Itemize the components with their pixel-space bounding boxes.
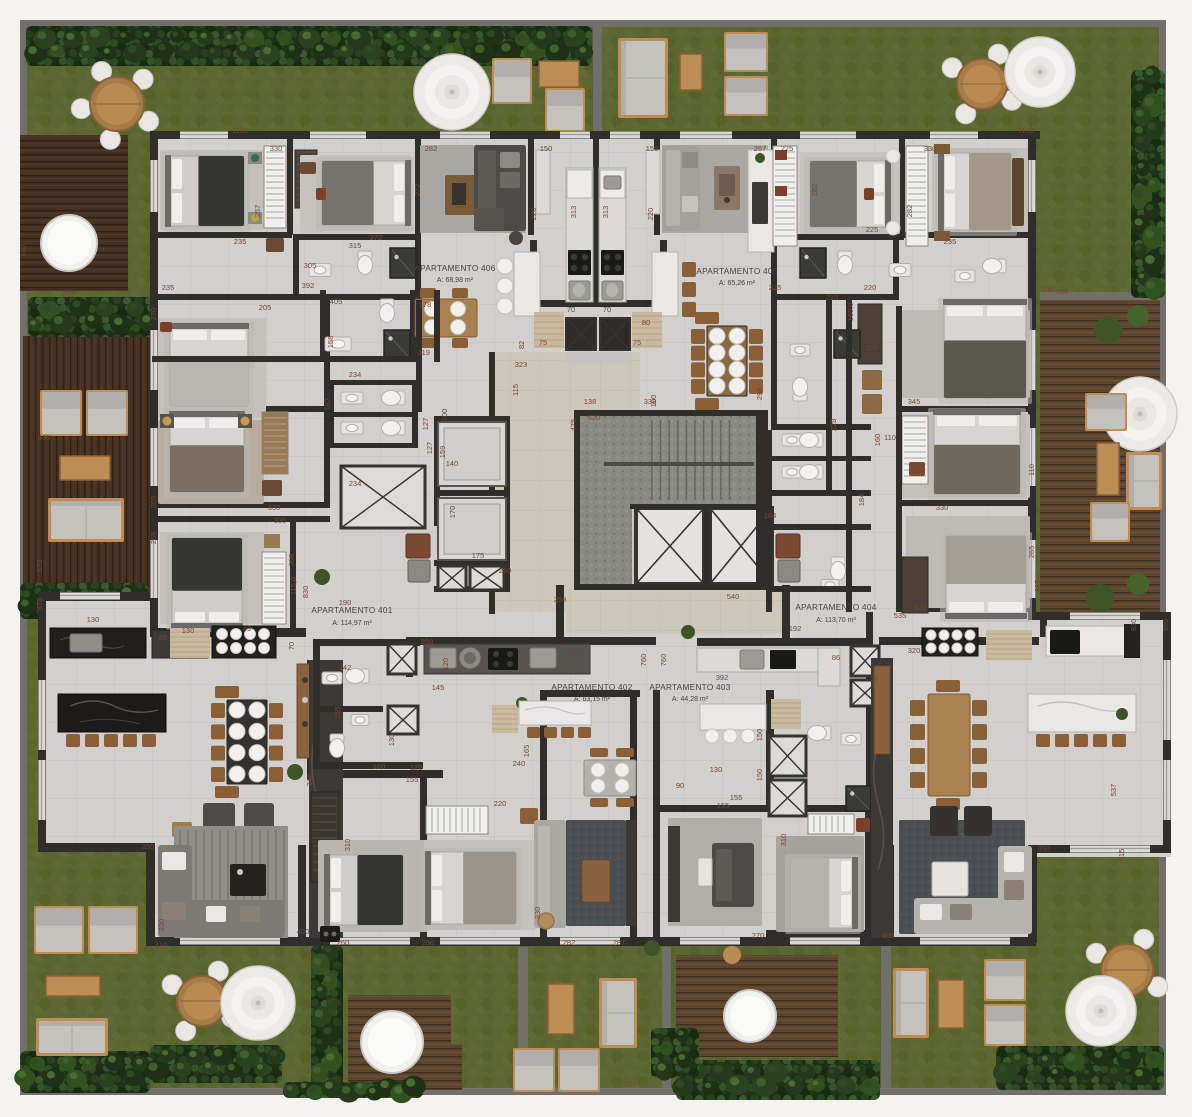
svg-text:85: 85 — [159, 633, 167, 642]
svg-text:165: 165 — [522, 745, 531, 758]
svg-text:330: 330 — [533, 907, 542, 920]
svg-text:260: 260 — [337, 938, 350, 947]
svg-text:86: 86 — [832, 653, 840, 662]
svg-text:320: 320 — [908, 646, 921, 655]
svg-text:100: 100 — [866, 343, 879, 352]
svg-text:265: 265 — [1033, 580, 1042, 593]
svg-text:315: 315 — [349, 241, 362, 250]
svg-text:385: 385 — [303, 951, 312, 964]
svg-text:265: 265 — [149, 496, 158, 509]
svg-text:535: 535 — [894, 611, 907, 620]
svg-text:282: 282 — [563, 938, 576, 947]
svg-text:175: 175 — [472, 551, 485, 560]
svg-text:330: 330 — [274, 516, 287, 525]
svg-text:178: 178 — [419, 300, 432, 309]
svg-text:140: 140 — [446, 459, 459, 468]
svg-text:265: 265 — [1027, 546, 1036, 559]
svg-text:APARTAMENTO 404: APARTAMENTO 404 — [795, 603, 876, 612]
svg-text:330: 330 — [924, 144, 937, 153]
svg-text:235: 235 — [234, 237, 247, 246]
svg-text:540: 540 — [727, 592, 740, 601]
svg-text:240: 240 — [513, 759, 526, 768]
svg-text:120: 120 — [441, 658, 450, 671]
svg-text:322: 322 — [914, 603, 927, 612]
svg-text:APARTAMENTO 406: APARTAMENTO 406 — [414, 264, 495, 273]
svg-text:125: 125 — [410, 763, 423, 772]
svg-text:282: 282 — [810, 184, 819, 197]
svg-text:400: 400 — [297, 927, 310, 936]
svg-text:615: 615 — [35, 598, 44, 611]
svg-text:297: 297 — [570, 646, 583, 655]
svg-text:150: 150 — [540, 144, 553, 153]
svg-text:234: 234 — [349, 479, 362, 488]
svg-text:130: 130 — [87, 615, 100, 624]
svg-text:150: 150 — [755, 769, 764, 782]
svg-text:310: 310 — [779, 834, 788, 847]
svg-text:950: 950 — [421, 637, 434, 646]
svg-text:235: 235 — [162, 283, 175, 292]
svg-text:250: 250 — [422, 938, 435, 947]
svg-text:287: 287 — [613, 938, 626, 947]
svg-text:345: 345 — [305, 774, 314, 787]
svg-text:230: 230 — [157, 919, 166, 932]
svg-text:1138: 1138 — [232, 126, 248, 135]
svg-text:323: 323 — [515, 360, 528, 369]
svg-text:405: 405 — [330, 297, 343, 306]
svg-text:100: 100 — [649, 395, 658, 408]
svg-text:70: 70 — [567, 305, 575, 314]
svg-text:282: 282 — [905, 205, 914, 218]
svg-text:330: 330 — [936, 503, 949, 512]
svg-text:184: 184 — [857, 494, 866, 507]
svg-text:335: 335 — [1042, 285, 1055, 294]
svg-text:267: 267 — [754, 144, 767, 153]
svg-text:150: 150 — [755, 729, 764, 742]
svg-text:228: 228 — [829, 419, 838, 432]
svg-text:150: 150 — [646, 144, 659, 153]
svg-text:270: 270 — [752, 931, 765, 940]
svg-text:350: 350 — [1038, 844, 1051, 853]
svg-text:155: 155 — [406, 775, 419, 784]
svg-text:822: 822 — [624, 1079, 637, 1088]
svg-text:127: 127 — [425, 442, 434, 455]
svg-text:APARTAMENTO 405: APARTAMENTO 405 — [696, 267, 777, 276]
svg-text:158: 158 — [326, 336, 335, 349]
svg-text:265: 265 — [149, 532, 158, 545]
svg-text:310: 310 — [343, 839, 352, 852]
svg-text:830: 830 — [1129, 619, 1138, 632]
svg-text:155: 155 — [333, 707, 342, 720]
svg-text:75: 75 — [539, 338, 547, 347]
svg-text:127: 127 — [421, 418, 430, 431]
svg-text:475: 475 — [569, 419, 578, 432]
svg-text:184: 184 — [764, 511, 777, 520]
svg-text:220: 220 — [494, 799, 507, 808]
svg-text:210: 210 — [826, 293, 839, 302]
svg-text:145: 145 — [432, 683, 445, 692]
svg-text:APARTAMENTO 401: APARTAMENTO 401 — [311, 606, 392, 615]
svg-text:890: 890 — [1161, 619, 1170, 632]
svg-text:330: 330 — [270, 144, 283, 153]
svg-text:335: 335 — [62, 289, 75, 298]
svg-text:155: 155 — [730, 793, 743, 802]
svg-text:A: 65,26 m²: A: 65,26 m² — [719, 280, 756, 287]
svg-text:760: 760 — [659, 654, 668, 667]
svg-text:225: 225 — [769, 283, 782, 292]
svg-text:160: 160 — [873, 434, 882, 447]
svg-text:49: 49 — [243, 624, 251, 633]
svg-text:A: 113,70 m²: A: 113,70 m² — [816, 617, 856, 624]
svg-text:305: 305 — [304, 261, 317, 270]
svg-text:A: 44,28 m²: A: 44,28 m² — [672, 696, 709, 703]
svg-text:737: 737 — [871, 674, 880, 687]
svg-text:220: 220 — [864, 283, 877, 292]
svg-text:80: 80 — [642, 318, 650, 327]
svg-text:830: 830 — [301, 586, 310, 599]
svg-text:345: 345 — [908, 397, 921, 406]
svg-text:130: 130 — [710, 765, 723, 774]
svg-text:270: 270 — [149, 308, 158, 321]
svg-text:272: 272 — [413, 184, 422, 197]
svg-text:313: 313 — [569, 206, 578, 219]
svg-text:1138: 1138 — [1018, 126, 1034, 135]
svg-text:520: 520 — [588, 413, 601, 422]
svg-text:225: 225 — [781, 144, 794, 153]
svg-text:130: 130 — [182, 626, 195, 635]
svg-text:298: 298 — [755, 388, 764, 401]
svg-text:282: 282 — [425, 144, 438, 153]
svg-text:APARTAMENTO 403: APARTAMENTO 403 — [649, 683, 730, 692]
svg-text:82: 82 — [517, 341, 526, 349]
svg-text:419: 419 — [155, 941, 168, 950]
svg-text:70: 70 — [287, 642, 296, 650]
svg-text:537: 537 — [1109, 784, 1118, 797]
svg-text:272: 272 — [370, 233, 383, 242]
svg-text:615: 615 — [1117, 849, 1126, 862]
svg-text:259: 259 — [554, 595, 567, 604]
svg-text:330: 330 — [268, 503, 281, 512]
svg-text:75: 75 — [633, 338, 641, 347]
svg-text:205: 205 — [259, 303, 272, 312]
svg-text:100: 100 — [440, 409, 449, 422]
svg-text:573: 573 — [35, 560, 44, 573]
svg-text:159: 159 — [438, 446, 447, 459]
svg-text:392: 392 — [716, 673, 729, 682]
svg-text:225: 225 — [866, 225, 879, 234]
svg-text:90: 90 — [676, 781, 684, 790]
svg-text:160: 160 — [373, 762, 386, 771]
svg-text:697: 697 — [19, 244, 28, 257]
svg-text:142: 142 — [339, 663, 352, 672]
svg-text:220: 220 — [646, 208, 655, 221]
svg-text:167: 167 — [323, 398, 332, 411]
svg-text:335: 335 — [1056, 287, 1069, 296]
svg-text:234: 234 — [349, 370, 362, 379]
svg-text:760: 760 — [639, 654, 648, 667]
svg-text:A: 114,97 m²: A: 114,97 m² — [332, 620, 372, 627]
svg-text:165,0: 165,0 — [846, 303, 855, 322]
svg-text:115: 115 — [511, 384, 520, 396]
svg-text:170: 170 — [448, 506, 457, 519]
svg-text:400: 400 — [882, 931, 895, 940]
svg-text:257: 257 — [253, 205, 262, 218]
svg-text:130: 130 — [387, 734, 396, 747]
svg-text:138: 138 — [584, 397, 597, 406]
svg-text:110: 110 — [884, 433, 896, 442]
svg-text:119: 119 — [418, 348, 430, 357]
svg-text:220: 220 — [529, 208, 538, 221]
svg-text:70: 70 — [603, 305, 611, 314]
svg-text:358: 358 — [287, 554, 296, 567]
svg-text:190: 190 — [339, 598, 352, 607]
svg-text:350: 350 — [142, 842, 155, 851]
svg-text:A: 68,98 m²: A: 68,98 m² — [437, 277, 474, 284]
svg-text:155: 155 — [717, 801, 730, 810]
svg-text:335: 335 — [38, 433, 51, 442]
svg-text:APARTAMENTO 402: APARTAMENTO 402 — [551, 683, 632, 692]
svg-text:192: 192 — [789, 624, 802, 633]
svg-text:110: 110 — [1027, 464, 1036, 476]
svg-text:259: 259 — [499, 566, 512, 575]
svg-text:313: 313 — [601, 206, 610, 219]
svg-text:A: 63,15 m²: A: 63,15 m² — [574, 696, 611, 703]
svg-text:115,0: 115,0 — [289, 577, 298, 595]
svg-text:392: 392 — [302, 281, 315, 290]
svg-text:235: 235 — [944, 237, 957, 246]
